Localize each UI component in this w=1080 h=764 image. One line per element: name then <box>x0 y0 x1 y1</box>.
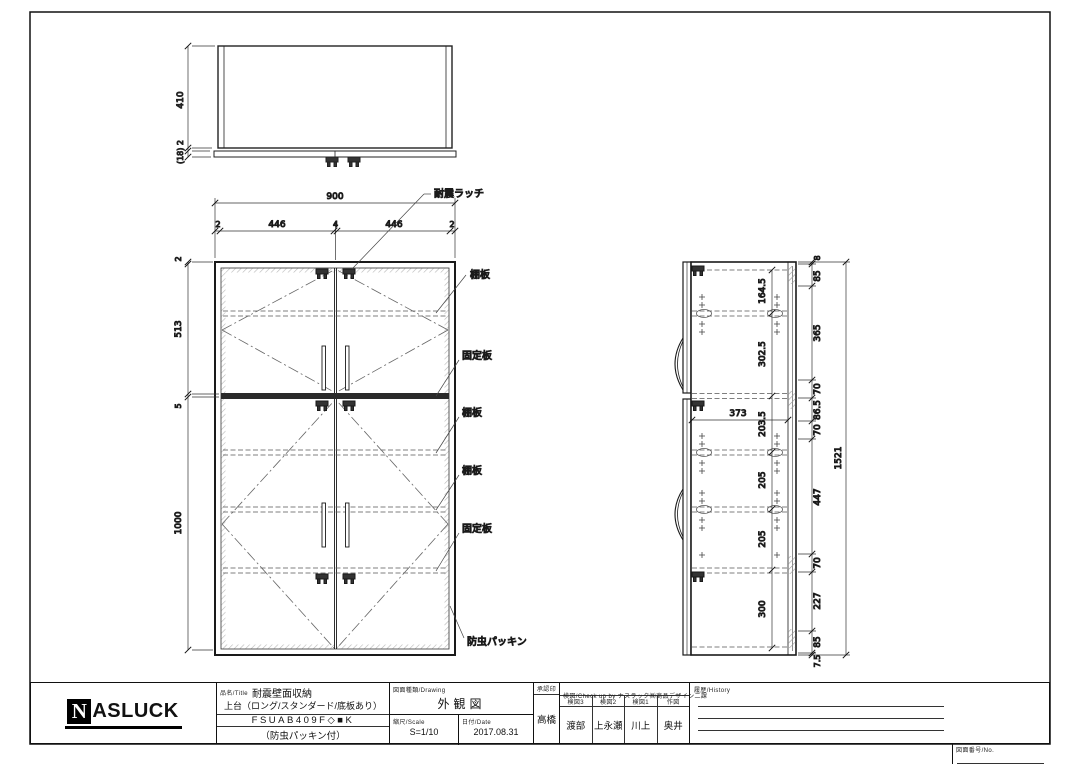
fixed-divider <box>221 393 449 399</box>
cabinet-technical-drawing: 410 (18) 2 <box>0 0 1080 764</box>
front-height-dim: 5 <box>174 403 183 408</box>
scale-label: 縮尺/Scale <box>393 717 425 726</box>
logo-wordmark: ASLUCK <box>92 700 178 723</box>
approval-label: 承認印 <box>537 684 556 693</box>
front-width-dim: 2 <box>449 220 454 229</box>
product-label: 品名/Title <box>220 688 248 697</box>
product-note: （防虫パッキン付） <box>217 727 389 743</box>
front-view: 900 2 446 4 446 2 2 513 5 1000 <box>174 187 527 655</box>
callout-shelf: 棚板 <box>462 464 482 477</box>
history-cell: 履歴/History <box>689 683 952 743</box>
sheet-border <box>30 12 1050 744</box>
front-width-overall: 900 <box>326 192 343 202</box>
side-inner-dim: 205 <box>758 471 768 488</box>
side-inner-dim: 205 <box>758 530 768 547</box>
side-right-dim: 8 <box>813 255 822 260</box>
drawing-cell: 図面種類/Drawing 外観図 縮尺/Scale S=1/10 日付/Date… <box>389 683 533 743</box>
callout-fixed: 固定板 <box>462 349 492 362</box>
nasluck-logo: N ASLUCK <box>65 698 181 729</box>
hinge-mark <box>326 157 338 167</box>
check-col-label: 検図3 <box>560 696 592 707</box>
top-view-door-dim: (18) 2 <box>176 140 185 164</box>
check-col: 検図1 川上 <box>624 696 657 743</box>
approval-name: 高橋 <box>534 695 559 743</box>
date-value: 2017.08.31 <box>459 727 533 737</box>
history-rule <box>698 706 944 707</box>
date-cell: 日付/Date 2017.08.31 <box>459 715 533 745</box>
callout-shelf: 棚板 <box>462 406 482 419</box>
scale-value: S=1/10 <box>390 727 458 737</box>
front-height-dim: 513 <box>174 320 184 337</box>
check-col-name: 奥井 <box>658 707 690 743</box>
front-width-dim: 2 <box>215 220 220 229</box>
check-col: 検図2 上永瀬 <box>592 696 625 743</box>
side-depth-dim: 373 <box>729 409 746 419</box>
side-right-dim: 85 <box>813 270 823 281</box>
scale-cell: 縮尺/Scale S=1/10 <box>390 715 459 745</box>
check-col-label: 検図1 <box>625 696 657 707</box>
drawing-number-cell: 図面番号/No. APR----- ver. 4.30 <box>952 743 1048 764</box>
check-col: 検図3 渡部 <box>560 696 592 743</box>
history-rule <box>698 730 944 731</box>
side-right-dim: 7.5 <box>813 655 822 668</box>
callout-latch: 耐震ラッチ <box>434 187 484 200</box>
check-col-name: 渡部 <box>560 707 592 743</box>
side-overall-height-dim: 1521 <box>834 447 844 470</box>
product-title-row: 品名/Title 耐震壁面収納 <box>217 683 389 699</box>
hinge-mark <box>348 157 360 167</box>
product-line2: 上台（ロング/スタンダード/底板あり） <box>217 699 389 714</box>
side-right-dim: 447 <box>813 488 823 505</box>
front-height-dim: 1000 <box>174 511 184 534</box>
logo-cell: N ASLUCK <box>31 683 216 743</box>
side-right-dim: 365 <box>813 324 823 341</box>
front-height-dim: 2 <box>174 256 183 261</box>
check-col-name: 川上 <box>625 707 657 743</box>
front-width-dim: 4 <box>333 220 338 229</box>
history-rule <box>698 718 944 719</box>
drawing-type-label: 図面種類/Drawing <box>393 685 445 694</box>
top-view-depth-dim: 410 <box>176 91 186 108</box>
side-right-dim: 227 <box>813 592 823 609</box>
product-cell: 品名/Title 耐震壁面収納 上台（ロング/スタンダード/底板あり） FSUA… <box>216 683 389 743</box>
drawing-type-value: 外観図 <box>390 695 533 712</box>
side-right-dim: 70 <box>813 383 823 395</box>
logo-n-mark: N <box>67 699 91 724</box>
drawing-number-label: 図面番号/No. <box>956 745 994 754</box>
title-block: N ASLUCK 品名/Title 耐震壁面収納 上台（ロング/スタンダード/底… <box>30 682 1050 744</box>
callout-shelf: 棚板 <box>470 268 490 281</box>
product-category: 耐震壁面収納 <box>252 685 312 700</box>
front-width-dim: 446 <box>268 220 285 230</box>
side-right-dim: 70 <box>813 424 823 436</box>
side-right-dim: 70 <box>813 557 823 569</box>
drawing-type-cell: 図面種類/Drawing 外観図 <box>390 683 533 715</box>
product-model: FSUAB409F◇■K <box>217 714 389 727</box>
side-inner-dim: 164.5 <box>758 278 768 304</box>
side-inner-dim: 302.5 <box>758 341 768 367</box>
side-right-dim: 85 <box>813 636 823 647</box>
check-col-label: 作図 <box>658 696 690 707</box>
check-cell: 検図/Check up by ナスラック㈱商品デザイン二課 検図3 渡部 検図2… <box>559 683 689 743</box>
history-label: 履歴/History <box>694 685 730 694</box>
side-inner-dim: 203.5 <box>758 411 768 437</box>
date-label: 日付/Date <box>462 717 491 726</box>
top-view: 410 (18) 2 <box>176 43 456 167</box>
side-right-dim: 86.5 <box>813 400 823 420</box>
check-col-label: 検図2 <box>593 696 625 707</box>
side-view: 164.5 302.5 203.5 205 205 300 373 <box>675 255 850 667</box>
check-col-name: 上永瀬 <box>593 707 625 743</box>
check-col: 作図 奥井 <box>657 696 690 743</box>
approval-cell: 承認印 高橋 <box>533 683 559 743</box>
callout-fixed: 固定板 <box>462 522 492 535</box>
side-inner-dim: 300 <box>758 600 768 617</box>
callout-packing: 防虫パッキン <box>467 635 527 648</box>
